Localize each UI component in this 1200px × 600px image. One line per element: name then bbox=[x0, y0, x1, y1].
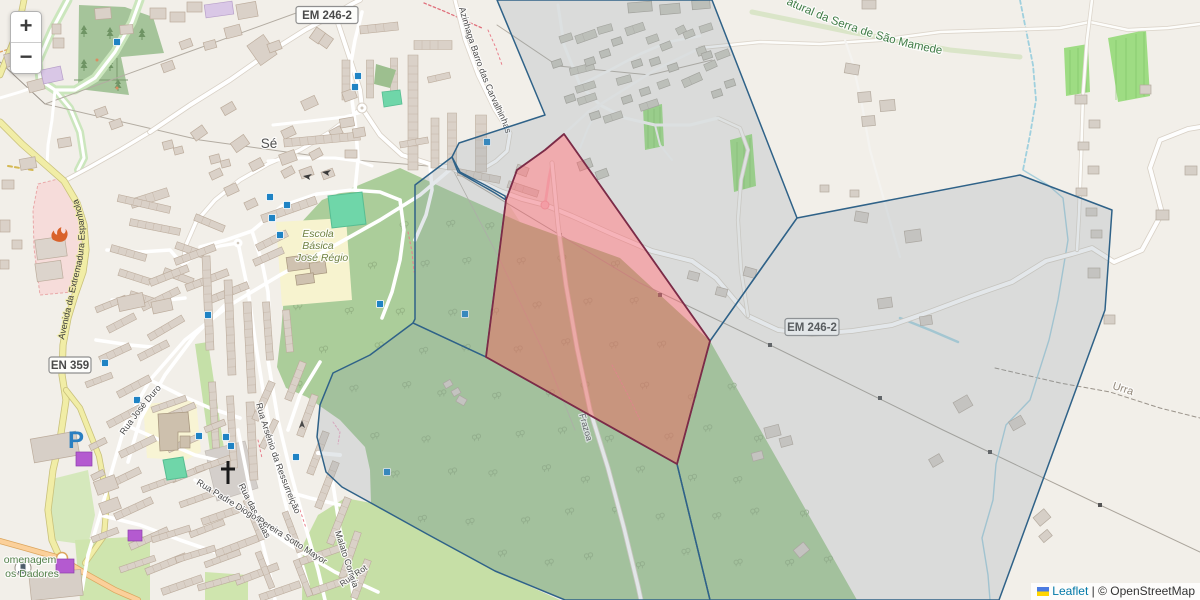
svg-text:José Régio: José Régio bbox=[295, 252, 349, 264]
svg-text:EN 359: EN 359 bbox=[51, 360, 89, 372]
svg-text:os Dadores: os Dadores bbox=[5, 568, 59, 580]
svg-text:P: P bbox=[68, 427, 84, 454]
svg-text:EM 246-2: EM 246-2 bbox=[302, 10, 352, 22]
svg-text:Sé: Sé bbox=[261, 136, 278, 151]
svg-text:omenagem: omenagem bbox=[4, 554, 57, 566]
svg-text:Escola: Escola bbox=[302, 228, 334, 240]
svg-text:Básica: Básica bbox=[302, 240, 334, 252]
